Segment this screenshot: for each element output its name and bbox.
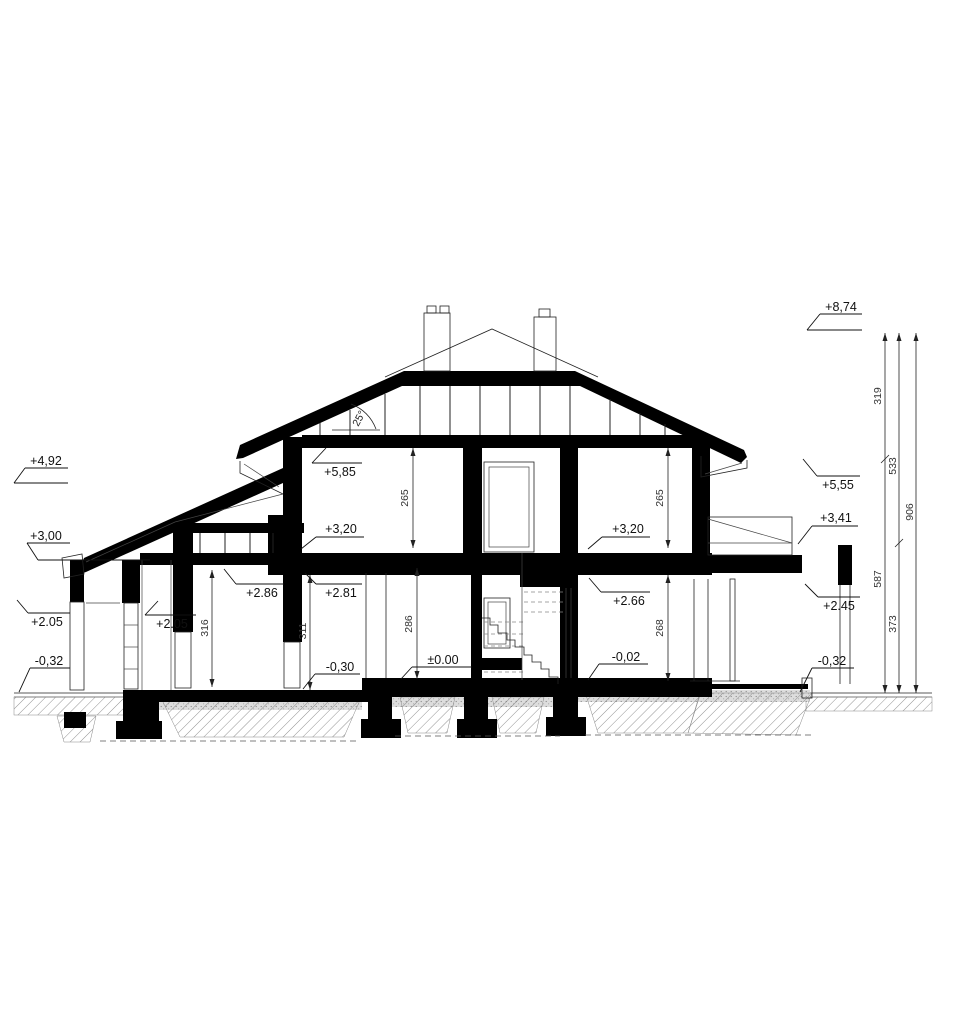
- level-label: ±0.00: [427, 653, 458, 667]
- level-label: +3,20: [325, 522, 357, 536]
- dimension-label: 373: [887, 615, 899, 633]
- knee-wall-ticks: [200, 533, 273, 553]
- dimension-label: 311: [297, 622, 309, 639]
- dimension-label: 316: [199, 619, 211, 637]
- chimney-right: [534, 309, 556, 371]
- level-label: +2.66: [613, 594, 645, 608]
- dimension-label: 265: [399, 489, 411, 507]
- level-label: +2.81: [325, 586, 357, 600]
- level-label: +5,85: [324, 465, 356, 479]
- chimney-left: [424, 306, 450, 371]
- dimension-label: 265: [654, 489, 666, 507]
- level-label: +3,20: [612, 522, 644, 536]
- level-label: +3,00: [30, 529, 62, 543]
- level-label: +2.45: [823, 599, 855, 613]
- level-label: +2.05: [156, 617, 188, 631]
- dimension-label: 286: [403, 615, 415, 633]
- cross-section-sheet: 316 311 286 265 265 268 319 533 906 587 …: [0, 0, 956, 1014]
- roof-angle-label: 25°: [350, 409, 368, 429]
- level-label: +4,92: [30, 454, 62, 468]
- porch-post-outline: [70, 602, 84, 690]
- hall-door-frames: [366, 573, 386, 678]
- terrace-glazing: [690, 579, 740, 681]
- level-label: +3,41: [820, 511, 852, 525]
- level-label: +2.86: [246, 586, 278, 600]
- level-label: -0,02: [612, 650, 641, 664]
- level-label: -0,32: [818, 654, 847, 668]
- level-label: +5,55: [822, 478, 854, 492]
- level-label: +2.05: [31, 615, 63, 629]
- dimension-label: 906: [904, 503, 916, 521]
- level-label: -0,32: [35, 654, 64, 668]
- terrace-parapet: [708, 517, 792, 555]
- dimension-label: 268: [654, 619, 666, 637]
- roof-ridge-outline: [385, 329, 598, 377]
- garage-door: [175, 632, 191, 688]
- dimension-label: 319: [872, 387, 884, 405]
- dimensions: 316 311 286 265 265 268 319 533 906 587 …: [199, 333, 919, 693]
- dimension-label: 533: [887, 457, 899, 475]
- interior-door: [284, 642, 300, 688]
- section-drawing: 316 311 286 265 265 268 319 533 906 587 …: [0, 0, 956, 1014]
- level-label: +8,74: [825, 300, 857, 314]
- level-label: -0,30: [326, 660, 355, 674]
- dimension-label: 587: [872, 570, 884, 588]
